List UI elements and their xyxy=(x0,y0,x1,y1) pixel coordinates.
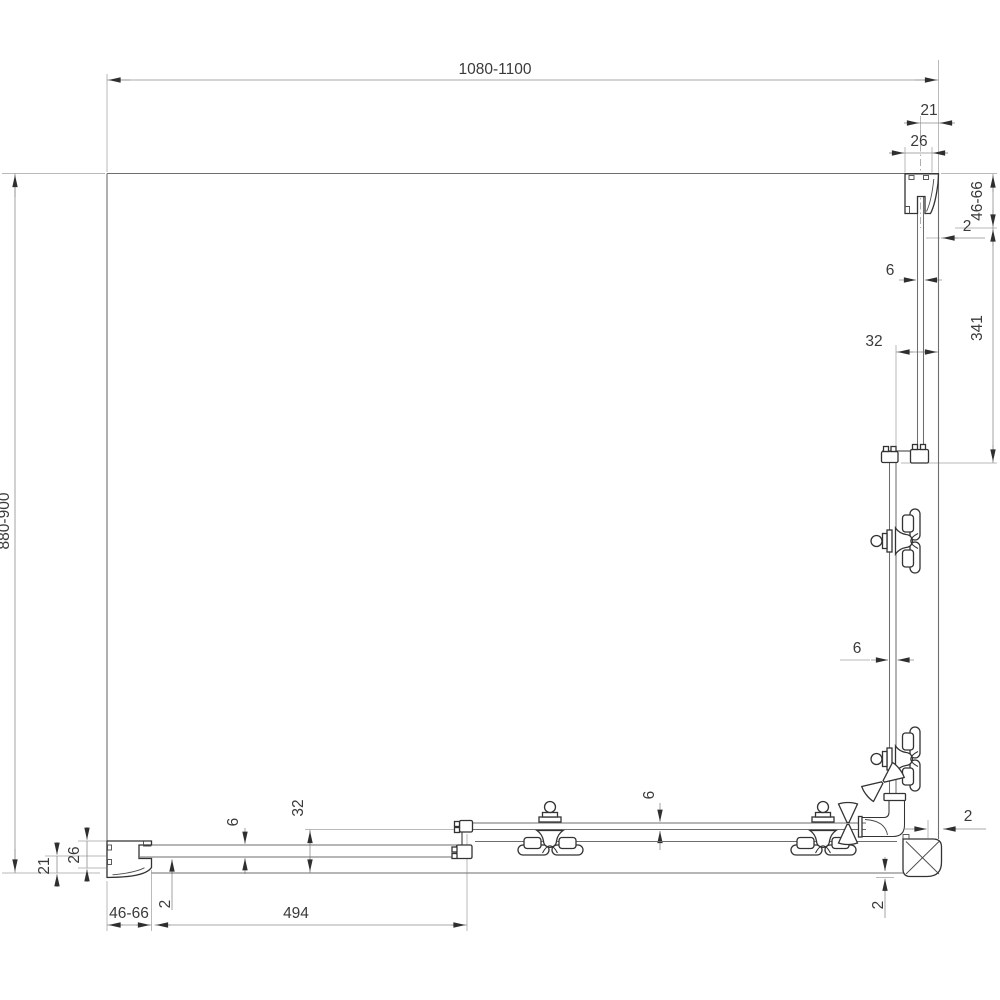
wall-profile-top-right xyxy=(905,174,939,214)
roller-assembly-bottom-left xyxy=(518,802,583,856)
dim-bottom-offset-32: 32 xyxy=(290,799,310,873)
dim-right-offset-32: 32 xyxy=(865,333,938,352)
dim-label-2-right: 2 xyxy=(963,218,972,235)
fixed-glass-panel-right xyxy=(918,197,924,462)
dim-label-494: 494 xyxy=(283,905,309,922)
dim-right-door-glass-6: 6 xyxy=(853,640,914,660)
glass-clamp-door-bottom-left xyxy=(455,821,473,846)
sliding-door-glass-bottom xyxy=(462,823,866,830)
dim-corner-gap-2-vertical: 2 xyxy=(870,857,887,918)
floor-corner-bracket xyxy=(903,835,942,877)
corner-connector-elbow xyxy=(859,794,906,838)
dim-label-2-bottom: 2 xyxy=(157,900,174,909)
dim-right-341: 341 xyxy=(969,228,993,463)
dim-label-6-bottom-fixed: 6 xyxy=(225,818,242,827)
fixed-glass-panel-bottom xyxy=(140,845,457,857)
dim-label-21-right: 21 xyxy=(920,102,937,119)
dim-bottom-profile-21: 21 xyxy=(36,842,57,887)
dim-label-2-corner-v: 2 xyxy=(870,901,887,910)
dim-label-26-bottom: 26 xyxy=(66,846,83,863)
dim-label-32-bottom: 32 xyxy=(290,799,307,816)
dim-right-profile-21: 21 xyxy=(904,102,955,123)
dim-right-profile-26: 26 xyxy=(889,133,948,153)
dim-top-width: 1080-1100 xyxy=(107,61,939,80)
dim-label-46-66-right: 46-66 xyxy=(969,181,986,221)
dim-label-6-right-fixed: 6 xyxy=(886,262,895,279)
shower-tray-outline xyxy=(107,174,939,878)
wall-profile-bottom-left xyxy=(107,841,152,878)
dim-label-6-bottom-door: 6 xyxy=(641,791,658,800)
dim-label-left-height: 880-900 xyxy=(0,492,13,549)
dim-bottom-gap-2: 2 xyxy=(157,860,174,911)
dim-label-top-width: 1080-1100 xyxy=(459,61,532,78)
glass-clamp-door-top-right xyxy=(882,447,914,463)
dim-bottom-profile-26: 26 xyxy=(66,827,87,882)
dim-bottom-glass-6: 6 xyxy=(225,818,245,874)
extension-lines xyxy=(2,60,997,931)
dim-bottom-494: 494 xyxy=(155,905,468,925)
dim-bottom-profile-46-66: 46-66 xyxy=(107,905,152,925)
glass-clamp-fixed-bottom-right xyxy=(911,445,929,464)
shower-enclosure-drawing: 1080-1100 880-900 21 26 46-66 2 6 xyxy=(0,0,1000,1000)
dim-label-341: 341 xyxy=(969,315,986,341)
technical-drawing-canvas: 1080-1100 880-900 21 26 46-66 2 6 xyxy=(0,0,1000,1000)
dim-right-profile-46-66: 46-66 xyxy=(969,174,993,228)
dim-label-2-corner-h: 2 xyxy=(964,808,973,825)
dim-label-32-right: 32 xyxy=(865,333,882,350)
dim-corner-gap-2-horizontal: 2 xyxy=(905,808,986,829)
dim-label-21-bottom: 21 xyxy=(36,857,53,874)
dim-right-glass-6: 6 xyxy=(886,262,942,280)
dim-left-height: 880-900 xyxy=(0,174,15,874)
dim-label-6-right-door: 6 xyxy=(853,640,862,657)
dim-label-26-right: 26 xyxy=(910,133,927,150)
glass-clamp-fixed-bottom-panel xyxy=(452,845,472,859)
dim-label-46-66-bottom: 46-66 xyxy=(109,905,149,922)
